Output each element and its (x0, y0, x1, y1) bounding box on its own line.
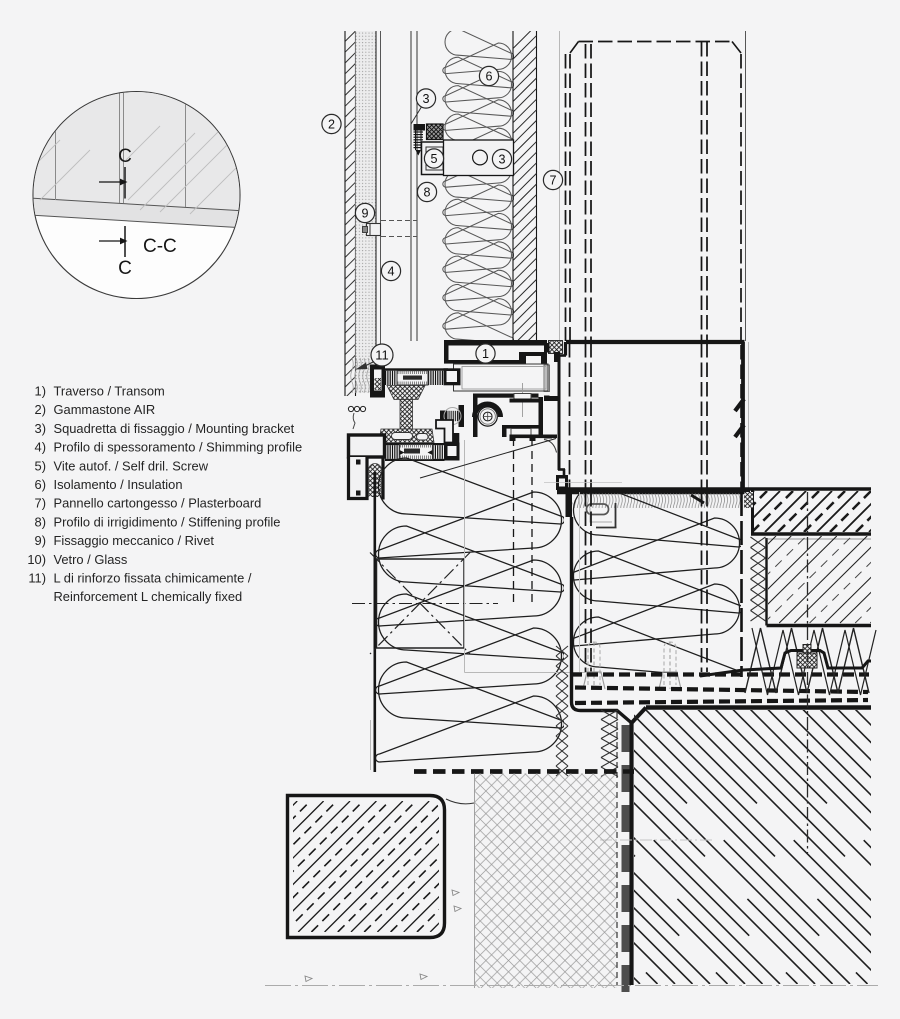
svg-text:8: 8 (423, 186, 430, 200)
svg-text:L di rinforzo fissata chimicam: L di rinforzo fissata chimicamente / (54, 571, 252, 586)
svg-text:6): 6) (35, 477, 46, 492)
svg-text:3): 3) (35, 421, 46, 436)
svg-text:2): 2) (35, 402, 46, 417)
svg-text:7: 7 (549, 174, 556, 188)
svg-text:3: 3 (498, 153, 505, 167)
svg-text:Profilo di spessoramento / Shi: Profilo di spessoramento / Shimming prof… (54, 440, 303, 455)
svg-text:11: 11 (375, 348, 389, 363)
svg-text:Traverso / Transom: Traverso / Transom (54, 384, 165, 399)
svg-text:4): 4) (35, 440, 46, 455)
svg-text:5): 5) (35, 458, 46, 473)
svg-text:C-C: C-C (143, 236, 177, 257)
svg-text:Reinforcement L chemically fix: Reinforcement L chemically fixed (54, 589, 243, 604)
svg-text:Isolamento / Insulation: Isolamento / Insulation (54, 477, 183, 492)
svg-text:Profilo di irrigidimento / Sti: Profilo di irrigidimento / Stiffening pr… (54, 514, 281, 529)
svg-text:Gammastone AIR: Gammastone AIR (54, 402, 156, 417)
svg-text:10): 10) (27, 552, 46, 567)
svg-text:Pannello cartongesso / Plaster: Pannello cartongesso / Plasterboard (54, 496, 262, 511)
svg-text:11): 11) (28, 571, 46, 586)
svg-text:Squadretta di fissaggio / Moun: Squadretta di fissaggio / Mounting brack… (54, 421, 295, 436)
svg-text:8): 8) (35, 514, 46, 529)
svg-text:Vetro / Glass: Vetro / Glass (54, 552, 128, 567)
svg-text:1: 1 (482, 347, 489, 361)
svg-text:C: C (118, 146, 132, 167)
svg-text:Vite autof. / Self dril. Screw: Vite autof. / Self dril. Screw (54, 458, 209, 473)
svg-text:Fissaggio meccanico / Rivet: Fissaggio meccanico / Rivet (54, 533, 215, 548)
svg-text:C: C (118, 258, 132, 279)
svg-text:9: 9 (361, 207, 368, 221)
svg-text:5: 5 (430, 152, 437, 166)
svg-text:7): 7) (35, 496, 46, 511)
svg-text:4: 4 (387, 265, 394, 279)
svg-text:2: 2 (328, 118, 335, 132)
svg-text:1): 1) (35, 384, 46, 399)
svg-text:9): 9) (35, 533, 46, 548)
svg-text:3: 3 (422, 92, 429, 106)
svg-text:6: 6 (485, 70, 492, 84)
